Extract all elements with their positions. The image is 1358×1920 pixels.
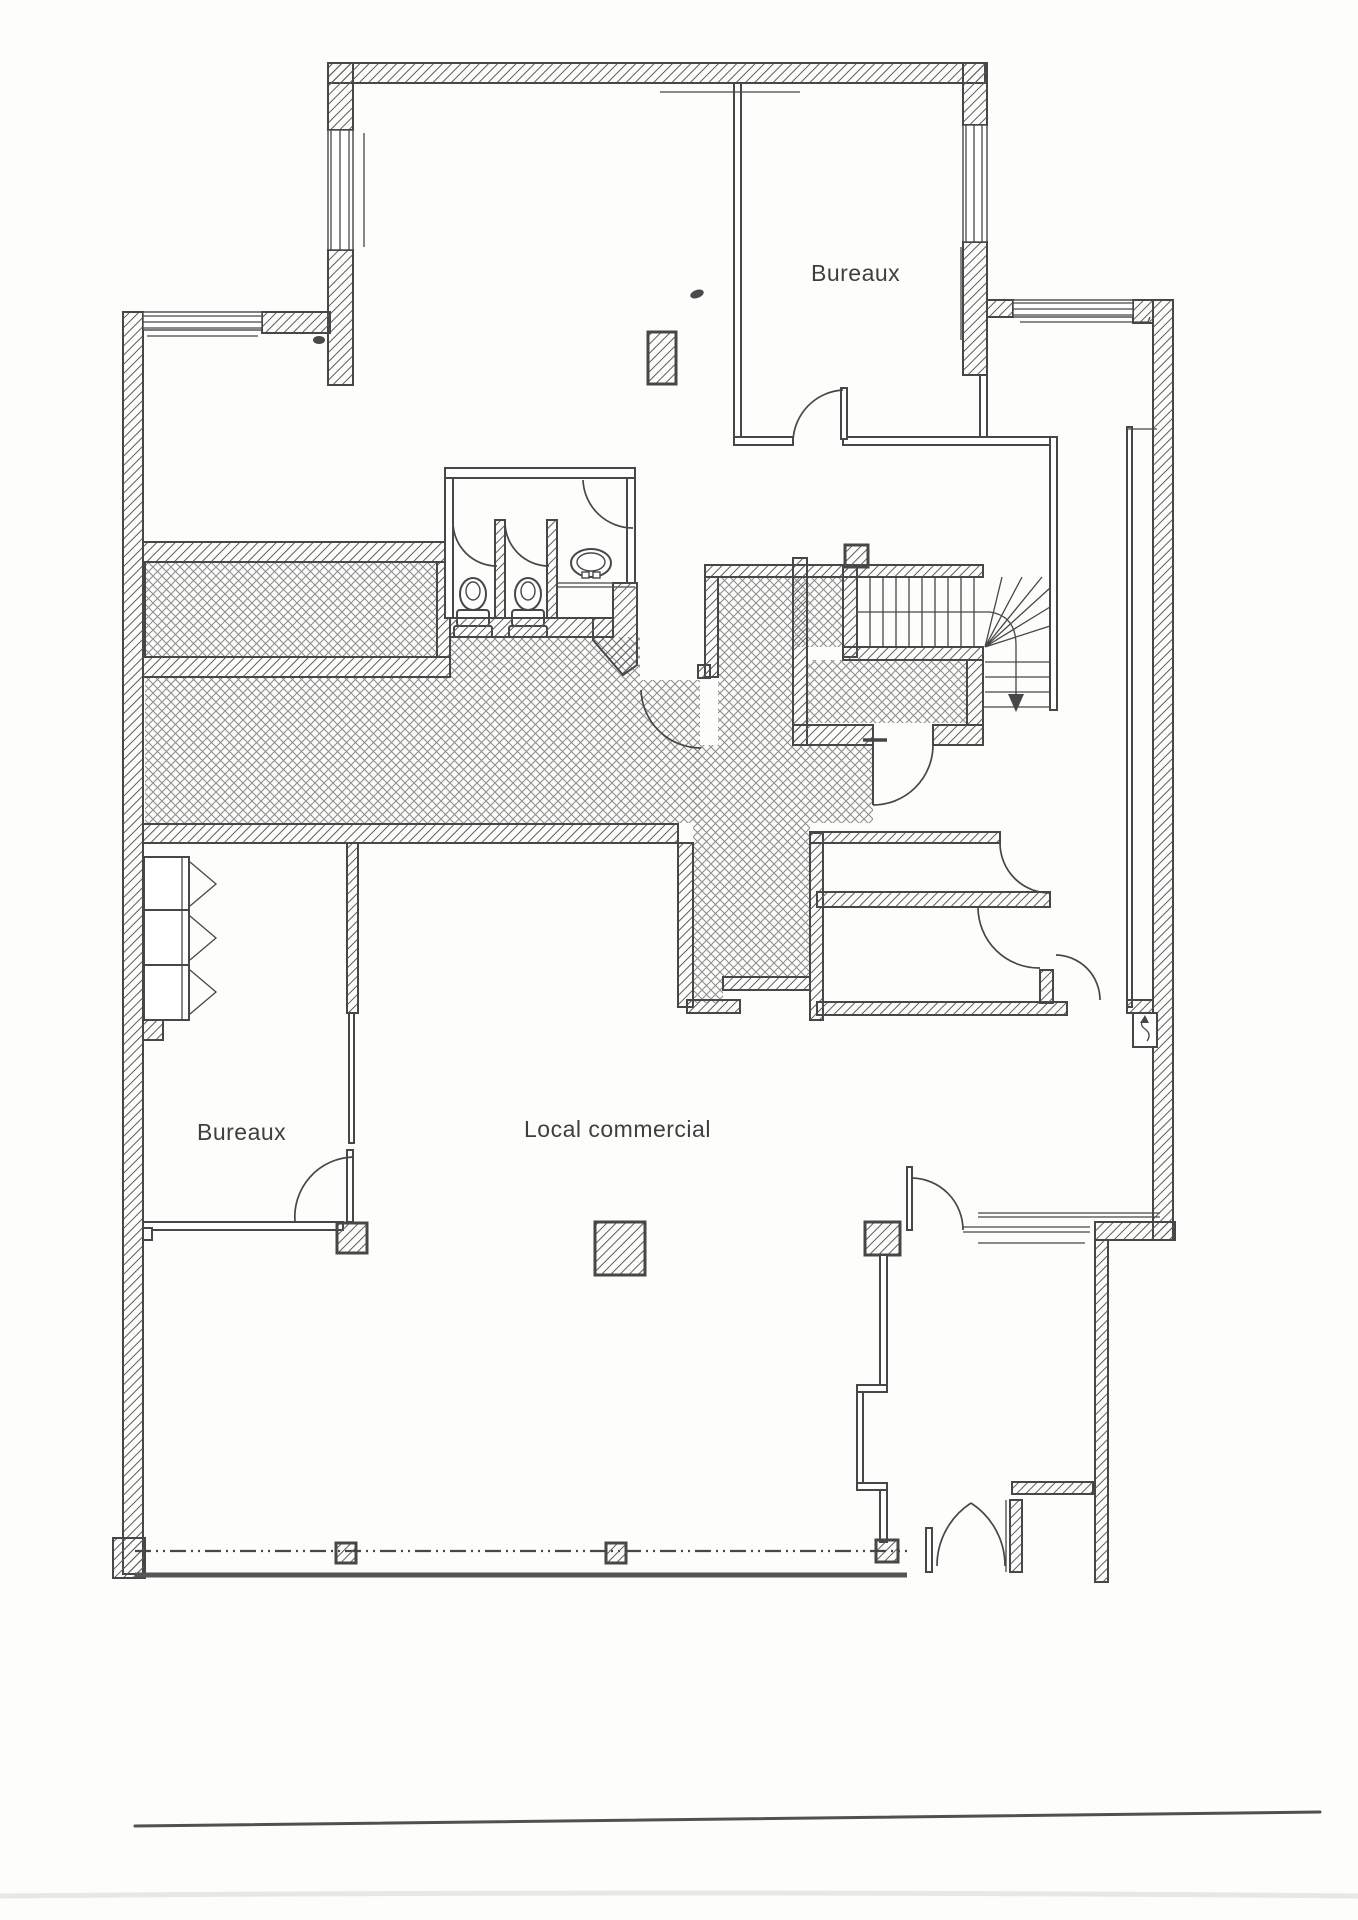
mullion-post xyxy=(336,1543,356,1563)
wall-segment xyxy=(328,63,985,83)
wall-segment xyxy=(143,1222,343,1230)
wall-segment xyxy=(963,242,987,375)
door-arc-office-top xyxy=(793,390,843,441)
wall-segment xyxy=(843,437,1050,445)
door-arc-lobby xyxy=(912,1178,963,1230)
office-top-label: Bureaux xyxy=(811,260,900,286)
scanned-floor-plan-page: Bureaux Bureaux Local commercial xyxy=(0,0,1358,1920)
wall-segment xyxy=(933,725,983,745)
corridor-floor xyxy=(693,745,873,823)
ink-speck xyxy=(313,336,325,344)
wall-segment xyxy=(723,977,810,990)
wall-segment xyxy=(347,843,358,1013)
wall-segment xyxy=(349,1013,354,1143)
wall-segment xyxy=(445,478,453,618)
wall-segment xyxy=(1095,1240,1108,1582)
door-leaf xyxy=(347,1150,353,1222)
wall-segment xyxy=(687,1000,740,1013)
column xyxy=(337,1223,367,1253)
porch-back-wall xyxy=(1012,1482,1093,1494)
wall-segment xyxy=(1127,1000,1153,1013)
wall-segment xyxy=(627,478,635,583)
wall-segment xyxy=(143,542,450,562)
wall-segment xyxy=(450,618,613,637)
right-outer-wall xyxy=(1153,300,1173,1240)
wall-notch xyxy=(143,1020,163,1040)
wall-segment xyxy=(143,824,678,843)
wall-segment xyxy=(967,660,983,725)
wall-segment xyxy=(328,63,353,130)
wall-segment xyxy=(143,657,450,677)
vestibule-floor xyxy=(807,660,967,723)
corridor-floor xyxy=(640,680,700,823)
wall-segment xyxy=(262,312,330,333)
door-leaf xyxy=(841,388,847,439)
wall-segment xyxy=(328,250,353,385)
door-arc-room-b xyxy=(978,907,1040,968)
wall-segment xyxy=(1095,1222,1175,1240)
wall-segment xyxy=(793,725,873,745)
wall-segment xyxy=(987,300,1013,317)
door-arc-wc-1 xyxy=(453,522,497,566)
wall-segment xyxy=(445,468,635,478)
ink-speck xyxy=(689,288,705,300)
washbasin-icon xyxy=(571,549,611,578)
stair-edge-wall xyxy=(1050,437,1057,710)
door-arc-office-bottom xyxy=(295,1157,353,1222)
window-east xyxy=(1013,300,1150,322)
door-arc-vestibule xyxy=(873,745,933,805)
door-arc-wc-2 xyxy=(505,522,549,566)
closet-door-chevron xyxy=(190,970,216,1014)
door-leaf xyxy=(926,1528,932,1572)
entrance-screen-partition xyxy=(857,1255,898,1562)
floor-strip-2 xyxy=(145,677,450,823)
wall-segment xyxy=(843,567,857,657)
window-sill-line xyxy=(1020,317,1150,322)
office-top-partition xyxy=(734,83,741,437)
wc-partition xyxy=(547,520,557,618)
stair-winders xyxy=(983,577,1057,707)
column xyxy=(595,1222,645,1275)
wall-segment xyxy=(734,437,793,445)
stair-landing-floor xyxy=(718,577,843,647)
door-pier xyxy=(1010,1500,1022,1572)
door-arc-corridor-end xyxy=(1056,955,1100,1000)
page-edge-shadow xyxy=(0,1893,1358,1896)
office-bottom-room xyxy=(143,843,367,1253)
wall-stub xyxy=(698,665,710,678)
wall-segment xyxy=(817,892,1050,907)
wall-segment xyxy=(963,63,987,125)
meter-box xyxy=(1133,1013,1157,1047)
corridor-floor xyxy=(693,823,810,977)
wall-segment xyxy=(980,375,987,439)
wall-segment xyxy=(705,577,718,677)
door-leaf xyxy=(907,1167,912,1230)
wall-segment xyxy=(793,558,807,745)
closet-door-chevron xyxy=(190,916,216,960)
wall-segment xyxy=(817,1002,1067,1015)
door-arc-entrance-right xyxy=(937,1503,971,1566)
stair-landing-floor xyxy=(718,647,793,745)
wc-partition xyxy=(495,520,505,618)
wall-segment xyxy=(1133,300,1153,323)
closet-door-chevron xyxy=(190,862,216,906)
window-west xyxy=(143,312,262,336)
stray-scan-line xyxy=(135,1812,1320,1826)
wall-segment xyxy=(843,647,983,660)
wall-segment xyxy=(678,843,693,1007)
closet-bays xyxy=(144,857,216,1020)
floor-strip-1 xyxy=(145,562,437,657)
door-arc-washroom xyxy=(583,480,633,528)
duct-lining-wall xyxy=(1127,427,1132,1007)
commercial-label: Local commercial xyxy=(524,1116,711,1142)
corridor-floor xyxy=(450,637,640,823)
entrance-double-door xyxy=(926,1503,1005,1572)
column xyxy=(648,332,676,384)
floor-plan: Bureaux Bureaux Local commercial xyxy=(0,0,1358,1920)
door-pier xyxy=(1040,970,1053,1003)
door-arc-room-a xyxy=(1000,843,1050,893)
wall-segment xyxy=(810,832,1000,843)
wall-notch xyxy=(143,1228,152,1240)
window-northwest-room xyxy=(328,130,364,250)
door-arc-entrance-left xyxy=(971,1503,1005,1566)
left-outer-wall xyxy=(123,312,143,1574)
column xyxy=(865,1222,900,1255)
wall-segment xyxy=(810,833,823,1020)
office-bottom-label: Bureaux xyxy=(197,1119,286,1145)
column xyxy=(845,545,868,567)
wall-foot xyxy=(113,1538,145,1578)
mullion-post xyxy=(606,1543,626,1563)
